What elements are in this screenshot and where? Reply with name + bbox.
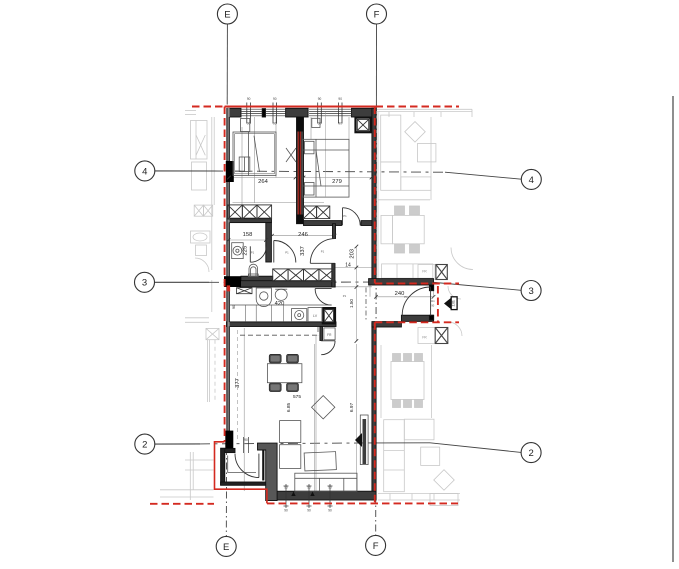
svg-text:2.01: 2.01 — [451, 300, 455, 306]
svg-text:90: 90 — [232, 305, 236, 309]
svg-text:158: 158 — [243, 232, 253, 238]
svg-text:90: 90 — [328, 509, 332, 513]
svg-text:P1: P1 — [343, 214, 347, 218]
svg-text:P1: P1 — [285, 251, 289, 255]
svg-text:FR: FR — [422, 336, 427, 340]
svg-text:337: 337 — [300, 246, 306, 256]
svg-text:LV: LV — [313, 314, 318, 318]
svg-text:6.85: 6.85 — [286, 403, 292, 413]
svg-text:575: 575 — [293, 394, 301, 400]
svg-text:203: 203 — [349, 249, 355, 259]
svg-text:P1: P1 — [404, 295, 408, 299]
svg-text:90: 90 — [328, 486, 332, 490]
svg-text:90: 90 — [273, 122, 277, 126]
svg-text:4: 4 — [529, 175, 534, 186]
svg-text:90: 90 — [284, 509, 288, 513]
svg-text:P1: P1 — [343, 294, 347, 298]
svg-text:279: 279 — [332, 179, 342, 185]
svg-text:F: F — [374, 9, 380, 20]
svg-text:3: 3 — [142, 278, 147, 289]
svg-text:FR: FR — [422, 270, 427, 274]
svg-text:264: 264 — [258, 179, 268, 185]
svg-text:225: 225 — [242, 246, 248, 256]
svg-text:2: 2 — [142, 440, 147, 451]
svg-text:6.97: 6.97 — [349, 403, 355, 413]
svg-text:90: 90 — [318, 97, 322, 101]
svg-text:111: 111 — [431, 299, 435, 303]
svg-text:F: F — [373, 541, 379, 552]
svg-text:P1: P1 — [251, 251, 255, 255]
svg-text:90: 90 — [244, 438, 248, 442]
svg-text:90: 90 — [247, 97, 251, 101]
svg-text:377: 377 — [235, 378, 241, 388]
svg-text:E: E — [223, 542, 229, 553]
svg-text:1.50: 1.50 — [349, 299, 354, 308]
svg-text:2: 2 — [528, 448, 533, 459]
svg-text:90: 90 — [273, 97, 277, 101]
svg-text:FR: FR — [327, 333, 332, 337]
svg-text:4: 4 — [142, 166, 147, 177]
svg-text:420: 420 — [275, 301, 285, 307]
svg-text:90: 90 — [307, 509, 311, 513]
svg-text:246: 246 — [298, 232, 308, 238]
svg-text:90: 90 — [307, 486, 311, 490]
svg-text:90: 90 — [338, 97, 342, 101]
svg-text:E: E — [224, 9, 230, 20]
svg-text:90: 90 — [284, 486, 288, 490]
svg-text:90: 90 — [338, 122, 342, 126]
svg-text:240: 240 — [395, 291, 405, 297]
svg-text:14: 14 — [345, 262, 351, 268]
svg-text:P1: P1 — [321, 249, 325, 253]
svg-text:3: 3 — [528, 286, 533, 297]
